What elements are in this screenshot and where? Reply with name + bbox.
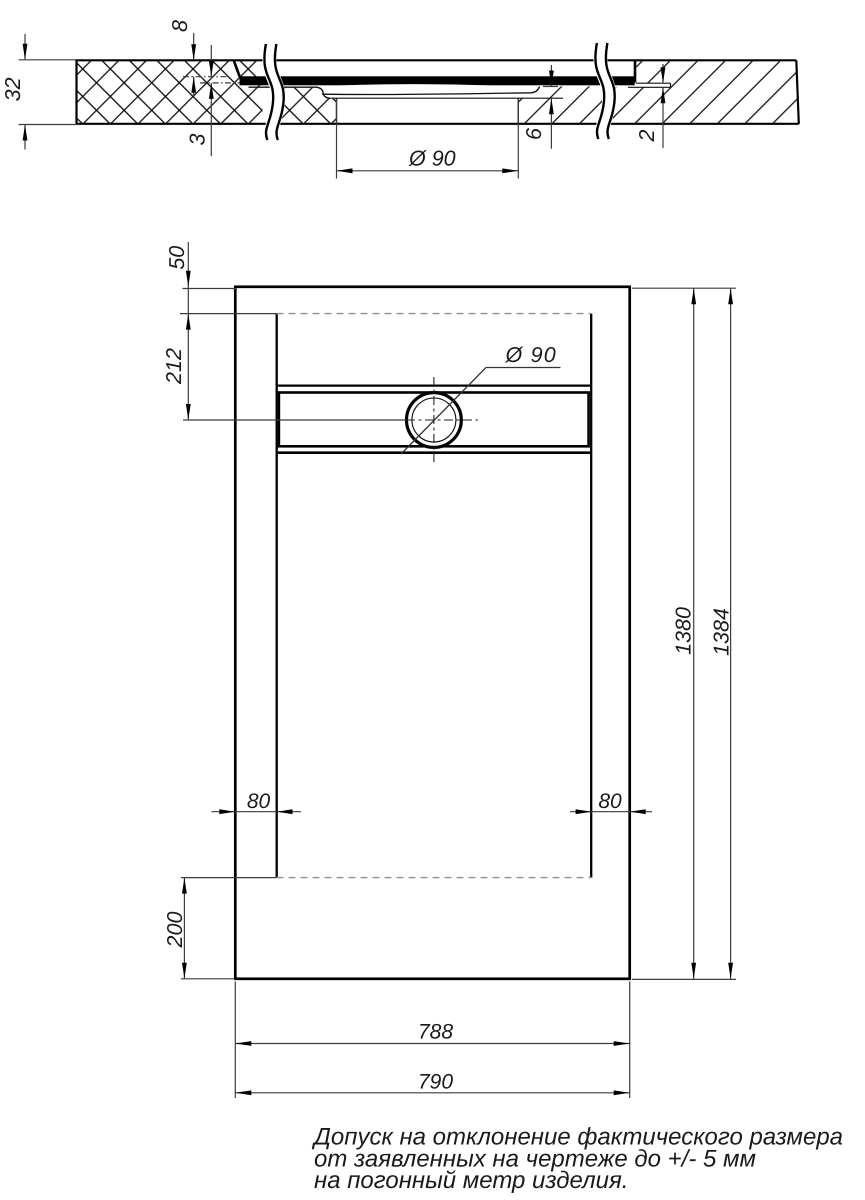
- svg-text:1380: 1380: [672, 607, 696, 655]
- svg-text:788: 788: [418, 1021, 453, 1044]
- svg-text:8: 8: [168, 20, 192, 32]
- svg-text:Ø 90: Ø 90: [505, 343, 557, 367]
- svg-text:212: 212: [162, 348, 186, 385]
- svg-text:32: 32: [1, 77, 25, 101]
- svg-text:790: 790: [418, 1071, 453, 1094]
- svg-text:80: 80: [598, 790, 622, 813]
- svg-text:2: 2: [635, 129, 659, 142]
- svg-text:50: 50: [165, 246, 189, 270]
- svg-text:1384: 1384: [710, 608, 734, 656]
- svg-text:80: 80: [247, 790, 271, 813]
- svg-text:Ø 90: Ø 90: [408, 147, 456, 171]
- svg-text:на погонный метр изделия.: на погонный метр изделия.: [314, 1167, 628, 1194]
- svg-text:200: 200: [163, 912, 187, 949]
- svg-text:3: 3: [186, 133, 210, 145]
- svg-text:6: 6: [522, 128, 546, 140]
